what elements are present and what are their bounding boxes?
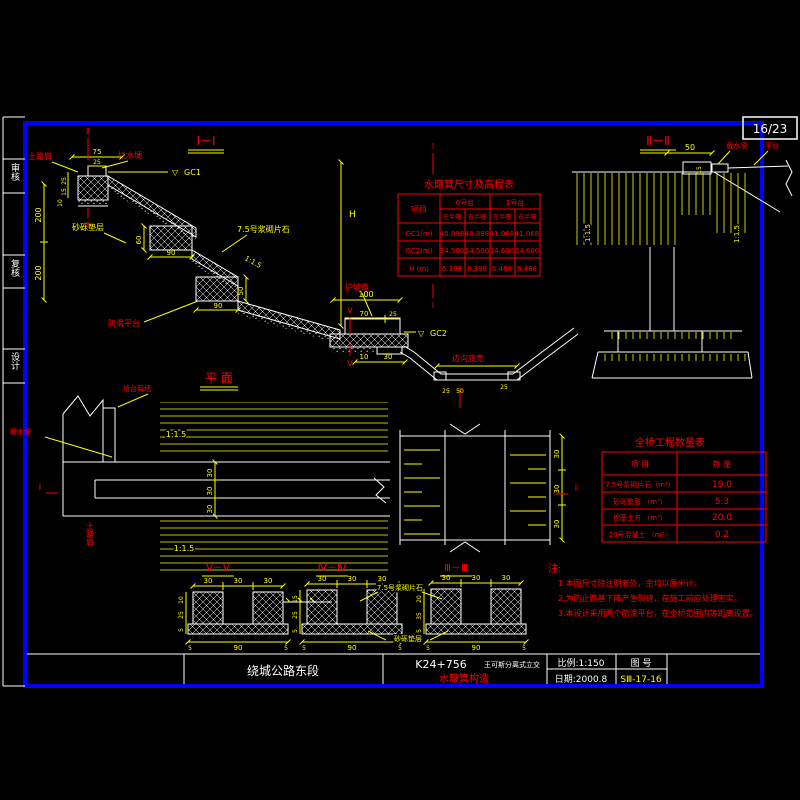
row-gc2: GC2(m) [405, 247, 432, 255]
cut-mark-I-top: Ⅰ [432, 142, 434, 151]
drawing-title: 水簸箕构造 [439, 672, 489, 685]
section-III-title: Ⅲ－Ⅲ [444, 563, 468, 574]
cad-canvas: 审核 复核 设计 16/23 Ⅰ－Ⅰ ▽ GC1 ▽ GC2 75 25 25 [0, 0, 800, 800]
dim: 5 [178, 628, 185, 632]
interchange-name: 王可斯分离式立交 [484, 660, 540, 669]
dim: 30 [442, 574, 451, 582]
sub-right-0: 右半幅 [468, 213, 486, 221]
qty-table-title: 全桥工程数量表 [635, 436, 705, 449]
dim-25: 25 [93, 159, 101, 166]
cell: 40.898 [465, 230, 490, 238]
label-ditch-width: 边沟底宽 [452, 353, 484, 363]
side-ditch [400, 328, 578, 380]
qty-row-masonry: 7.5号浆砌片石（m³） [605, 480, 675, 489]
col-abutment0: 0号台 [456, 198, 474, 207]
dim-ditch-25a: 25 [442, 388, 450, 395]
piece-dim-30b: 30 [553, 485, 561, 494]
label-cushion-sections: 砂砾垫层 [394, 634, 422, 643]
dim-25b: 25 [389, 311, 397, 318]
dim-200a: 200 [34, 207, 43, 222]
dim: 5 [398, 645, 402, 652]
notes-heading: 注: [548, 562, 561, 575]
dim-ditch-25b: 25 [500, 384, 508, 391]
dim: 25 [292, 611, 299, 619]
col-abutment3: 3号台 [506, 198, 524, 207]
dim: 25 [178, 611, 185, 619]
qty-val-masonry: 19.0 [712, 480, 732, 490]
label-shoulder-plan: 土路肩 [86, 521, 95, 547]
gc2-triangle: ▽ [418, 329, 425, 338]
qty-row-concrete: 20号混凝土 （m³） [609, 530, 672, 539]
row-h: H (m) [409, 265, 429, 273]
dim-60: 60 [135, 236, 143, 245]
station-number: K24+756 [415, 658, 466, 671]
dim: 30 [378, 575, 387, 583]
cell: 6.398 [467, 265, 487, 273]
col-item: 项目 [411, 205, 427, 214]
elev-table-title: 水簸箕尺寸及高程表 [424, 178, 514, 191]
elevation-table: 水簸箕尺寸及高程表 项目 0号台 3号台 左半幅 右半幅 左半幅 右半幅 GC1… [398, 178, 540, 276]
dim: 20 [416, 595, 423, 603]
sidebar-design-label: 设计 [9, 352, 20, 371]
chute-plan-piece: 30 30 30 Ⅰ [400, 424, 577, 552]
dim: 5 [188, 645, 192, 652]
dim: 30 [234, 577, 243, 585]
dim-H: H [349, 210, 356, 220]
dim-50-ii: 50 [685, 143, 695, 152]
dim: 30 [204, 577, 213, 585]
dim: 5 [284, 645, 288, 652]
note-1: 1.本图尺寸除注明者外，余均以厘米计。 [558, 578, 702, 588]
plan-dim-30b: 30 [206, 487, 214, 496]
dim: 30 [318, 575, 327, 583]
sidebar-check-label: 复核 [9, 258, 20, 278]
cell: 40.898 [440, 230, 465, 238]
dim-15-ii: 15 [696, 166, 703, 174]
section-IV-title: Ⅳ－Ⅳ [318, 563, 347, 574]
apron-foundation [330, 334, 408, 347]
row-gc1: GC1(m) [405, 230, 432, 238]
sub-left-3: 左半幅 [493, 213, 511, 221]
dim: 90 [234, 644, 243, 652]
step-block-2 [196, 277, 238, 301]
dim: 5 [416, 629, 423, 633]
dim: 35 [416, 612, 423, 620]
title-block: 绕城公路东段 K24+756 王可斯分离式立交 水簸箕构造 比例:1:150 日… [27, 654, 760, 685]
label-intercept-ridge: 截水埂 [727, 141, 748, 150]
drawing: 审核 复核 设计 16/23 Ⅰ－Ⅰ ▽ GC1 ▽ GC2 75 25 25 [0, 0, 800, 800]
chute-band-lower [238, 301, 340, 339]
dim-90a: 90 [167, 249, 176, 257]
notes: 注: 1.本图尺寸除注明者外，余均以厘米计。 2.为防止路基下降产生裂缝，在施工… [548, 562, 758, 618]
dim: 5 [302, 645, 306, 652]
label-masonry-sections: 7.5号浆砌片石 [377, 583, 423, 592]
dim-70: 70 [360, 310, 369, 318]
dim: 10 [178, 596, 185, 604]
cell: 6.468 [492, 265, 512, 273]
cut-mark-I-bottom: Ⅰ [432, 301, 434, 310]
cut-mark-V-top: Ⅴ [347, 306, 353, 315]
qty-val-cushion: 5.3 [715, 497, 729, 507]
label-ridge-plan: 截水埂 [10, 427, 31, 436]
dim: 30 [502, 574, 511, 582]
plan-dim-30a: 30 [206, 469, 214, 478]
section-view-II-II: Ⅱ－Ⅱ 50 15 截水埂 平台 1:1.5 1:1.5 [572, 134, 792, 378]
cut-marks: Ⅱ Ⅱ Ⅰ Ⅰ Ⅴ Ⅴ [86, 127, 460, 408]
plan-title: 平 面 [205, 371, 233, 385]
plan-dim-30c: 30 [206, 505, 214, 514]
label-water-ridge: 拦水埂 [118, 150, 142, 160]
figure-number: SⅢ-17-16 [620, 675, 662, 685]
section-IV-IV: Ⅳ－Ⅳ 30 30 30 15 25 5 5 90 5 [292, 563, 402, 652]
dim-90b: 90 [214, 302, 223, 310]
dim-75: 75 [93, 148, 102, 156]
qty-val-concrete: 0.2 [715, 530, 729, 540]
dim: 5 [522, 645, 526, 652]
cut-mark-V-bottom: Ⅴ [347, 359, 353, 368]
gc1-label: GC1 [184, 168, 201, 177]
cell: 6.468 [517, 265, 537, 273]
cell: 34.500 [440, 247, 465, 255]
scale-value: 比例:1:150 [558, 657, 605, 669]
dim: 90 [348, 644, 357, 652]
dim: 30 [348, 575, 357, 583]
qty-val-excavation: 20.0 [712, 513, 732, 523]
sheet-number: 16/23 [753, 122, 788, 136]
apron-basin [345, 318, 400, 334]
label-earth-shoulder: 土路肩 [28, 151, 52, 161]
dim-v10: 10 [57, 199, 64, 207]
qty-header-item: 项 目 [631, 460, 650, 469]
note-3: 3.本设计采用两个防滑平台，在全桥范围内等距离设置。 [558, 608, 758, 618]
dim-10: 10 [360, 353, 369, 361]
slope-hatch-right [716, 173, 750, 233]
dim: 5 [292, 629, 299, 633]
qty-row-excavation: 挖基土方 （m³） [613, 513, 667, 522]
section-I-title: Ⅰ－Ⅰ [196, 134, 215, 148]
dim-200b: 200 [34, 265, 43, 280]
cell: 34.500 [465, 247, 490, 255]
section-II-title: Ⅱ－Ⅱ [646, 134, 670, 148]
note-2: 2.为防止路基下降产生裂缝，在施工前应处理密实。 [558, 593, 742, 603]
piece-dim-30a: 30 [553, 450, 561, 459]
cell: 34.600 [515, 247, 540, 255]
dim: 90 [472, 644, 481, 652]
label-platform: 平台 [765, 141, 779, 150]
cell: 41.068 [515, 230, 540, 238]
plan-view: 平 面 1:1.5 1:1.5 30 30 30 桥台耳墙 截水埂 土路肩 Ⅰ [10, 371, 577, 572]
label-slope-ratio: 1:1.5 [243, 254, 263, 269]
plan-slope-lower: 1:1.5 [174, 544, 195, 553]
step-block-1 [150, 226, 192, 250]
label-masonry: 7.5号浆砌片石 [237, 224, 290, 234]
headwall [78, 176, 108, 200]
cross-sections: Ⅴ－Ⅴ 30 30 30 10 25 5 5 90 5 Ⅳ－Ⅳ 30 30 30… [178, 563, 526, 652]
sub-right-3: 右半幅 [518, 213, 536, 221]
footing [592, 331, 752, 378]
dim-50: 50 [237, 287, 245, 296]
intercept-ridge [712, 164, 728, 172]
plan-cut-I-left: Ⅰ [39, 483, 42, 493]
dim-30: 30 [384, 353, 393, 361]
cell: 34.600 [490, 247, 515, 255]
cut-mark-II-bottom: Ⅱ [86, 221, 90, 230]
cut-mark-II-top: Ⅱ [86, 127, 90, 136]
figure-number-label: 图 号 [631, 658, 652, 669]
date-value: 日期:2000.8 [555, 674, 608, 685]
gc1-triangle: ▽ [172, 168, 179, 177]
slope-ratio-right: 1:1.5 [733, 225, 741, 243]
sub-left-0: 左半幅 [443, 213, 461, 221]
plan-cut-I-right: Ⅰ [575, 484, 578, 494]
cell: 41.068 [490, 230, 515, 238]
dim: 30 [472, 574, 481, 582]
slope-ratio-left: 1:1.5 [584, 224, 592, 242]
qty-row-cushion: 砂砾垫层 （m³） [613, 497, 667, 506]
label-antislip-platform: 防滑平台 [108, 318, 140, 328]
label-ear-wall: 桥台耳墙 [123, 384, 151, 393]
gc2-label: GC2 [430, 329, 447, 338]
qty-header-qty: 数 量 [713, 459, 732, 469]
sidebar-review-label: 审核 [9, 162, 20, 182]
plan-slope-upper: 1:1.5 [166, 430, 187, 439]
label-berm: 护坡道 [345, 282, 369, 292]
piece-dim-30c: 30 [553, 520, 561, 529]
dim: 15 [292, 595, 299, 603]
section-V-title: Ⅴ－Ⅴ [206, 563, 230, 574]
dim-v15: 15 [61, 188, 68, 196]
cell: 6.398 [442, 265, 462, 273]
dim: 5 [426, 645, 430, 652]
quantity-table: 全桥工程数量表 项 目 数 量 7.5号浆砌片石（m³） 19.0 砂砾垫层 （… [602, 436, 766, 542]
project-name: 绕城公路东段 [247, 663, 319, 678]
dim: 30 [264, 577, 273, 585]
upper-slope-hatch [160, 402, 388, 456]
dim-v25: 25 [61, 177, 68, 185]
